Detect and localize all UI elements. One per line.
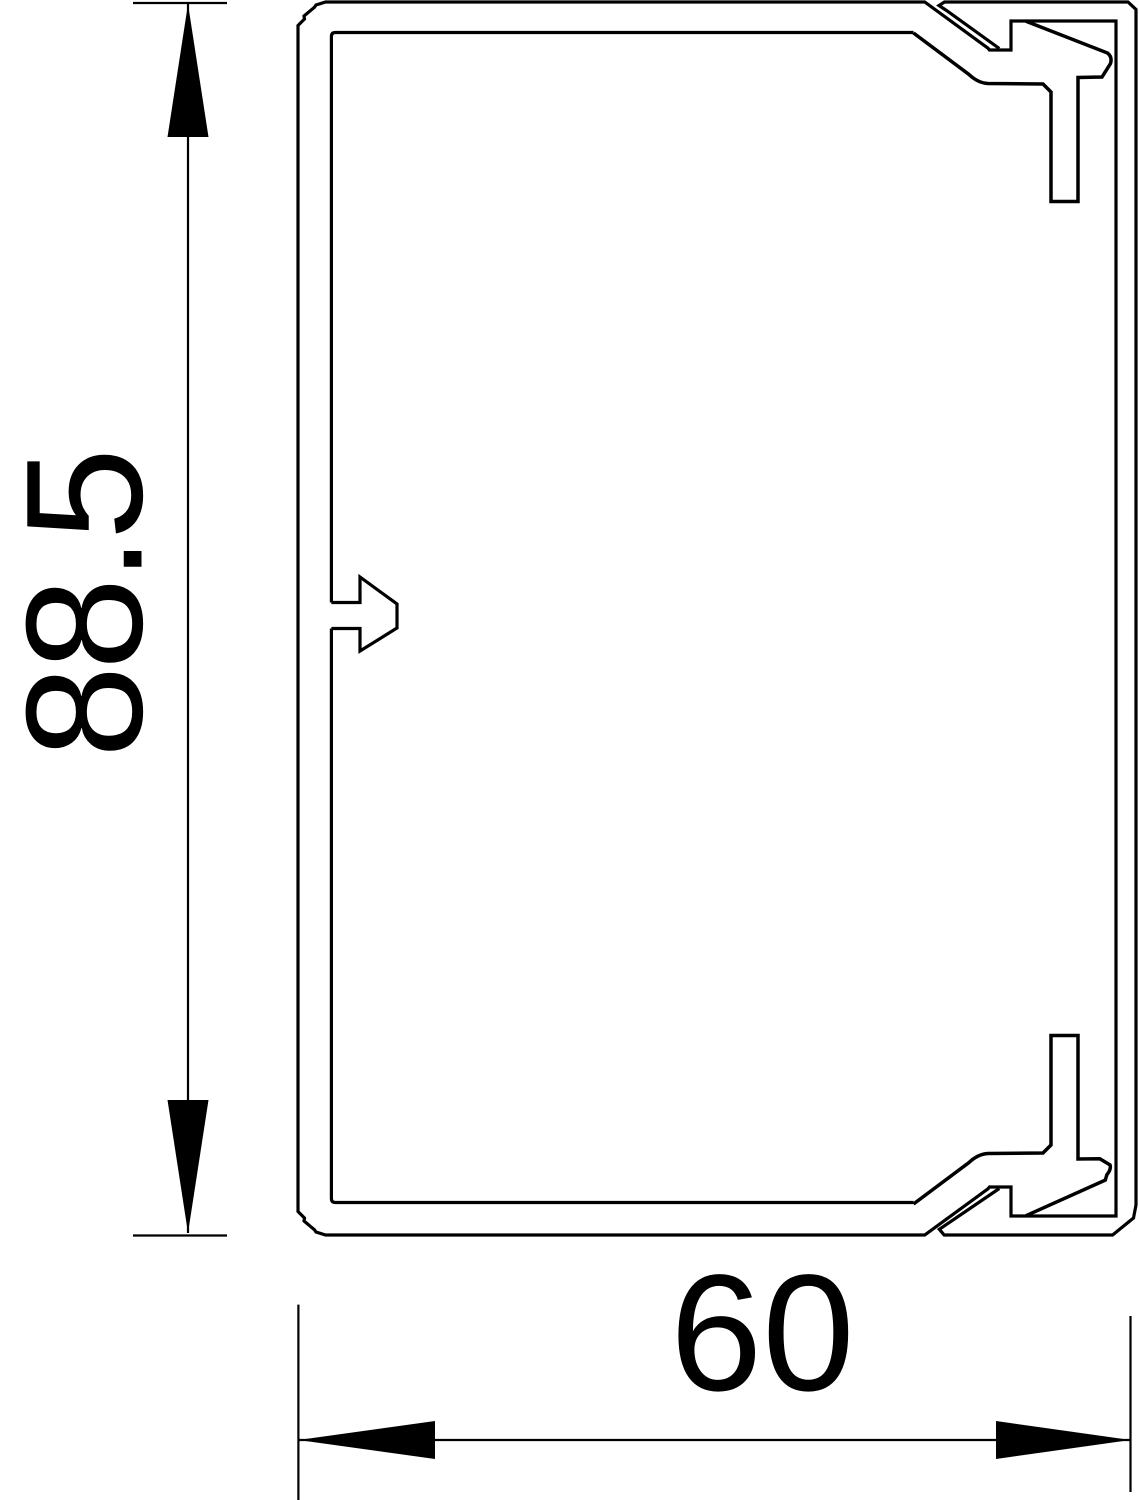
svg-text:60: 60 (670, 1241, 855, 1426)
svg-text:88.5: 88.5 (0, 452, 178, 758)
